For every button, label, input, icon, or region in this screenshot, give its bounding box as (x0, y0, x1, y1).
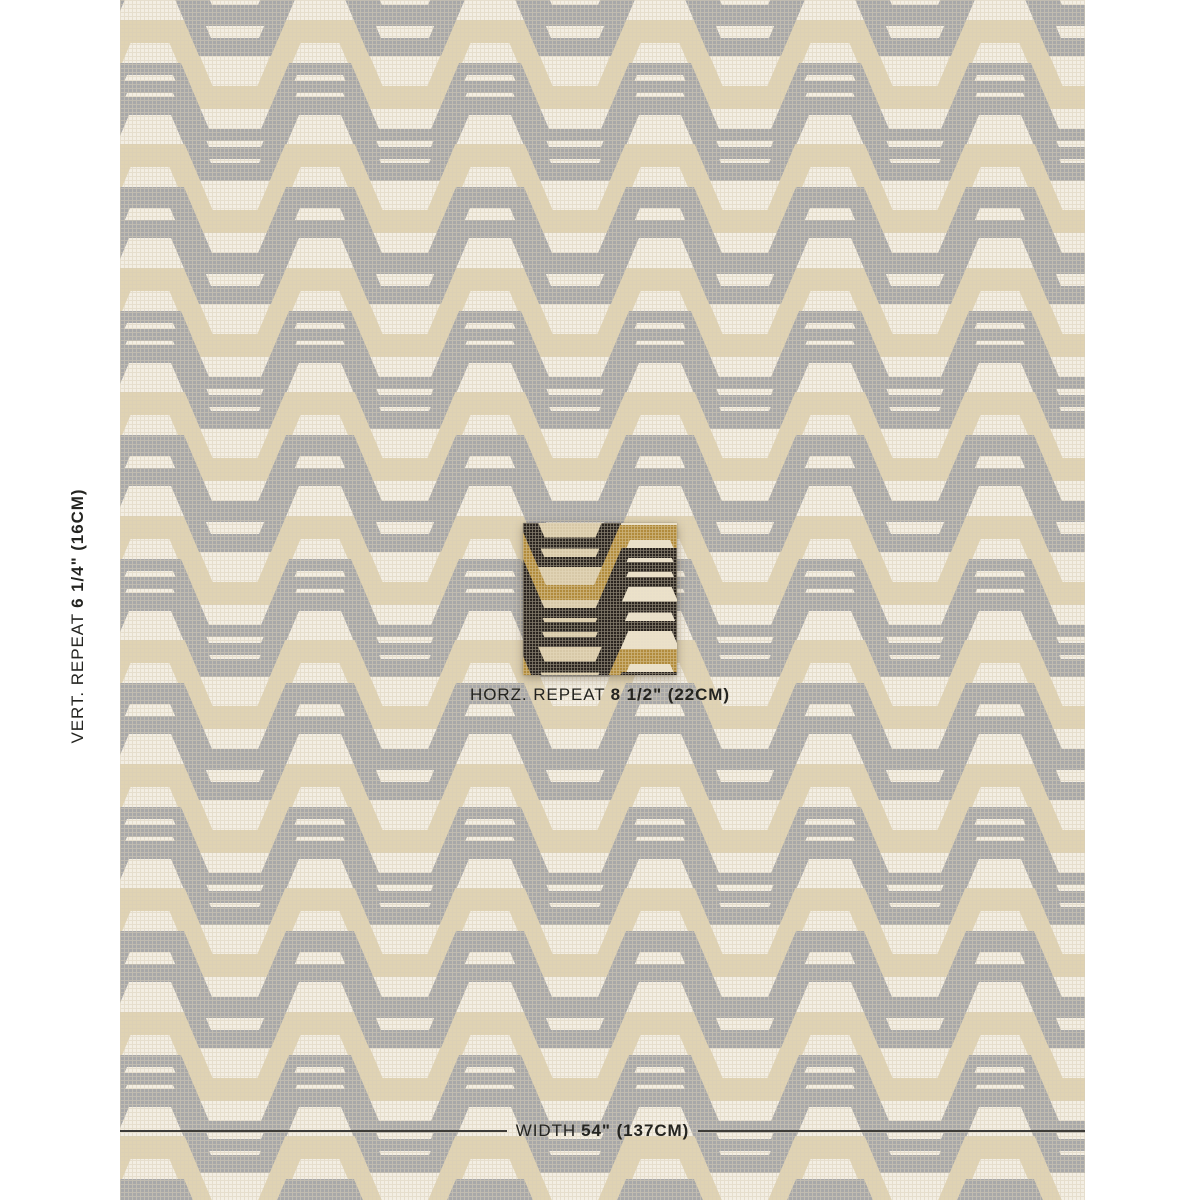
width-text: WIDTH (516, 1121, 576, 1140)
vertical-repeat-text: VERT. REPEAT (68, 613, 87, 744)
fabric-swatch-closeup (523, 523, 677, 675)
width-rule-left (120, 1130, 507, 1132)
width-annotation: WIDTH54" (137CM) (120, 1119, 1085, 1143)
swatch-zigzag-pattern-image (523, 523, 677, 675)
vertical-repeat-value: 6 1/4" (16CM) (68, 489, 87, 608)
horizontal-repeat-value: 8 1/2" (22CM) (611, 685, 730, 704)
horizontal-repeat-text: HORZ. REPEAT (470, 685, 606, 704)
width-label: WIDTH54" (137CM) (516, 1121, 690, 1141)
horizontal-repeat-label: HORZ. REPEAT8 1/2" (22CM) (0, 685, 1200, 705)
width-value: 54" (137CM) (581, 1121, 689, 1140)
fabric-spec-sheet: VERT. REPEAT6 1/4" (16CM) HORZ. REPEAT8 … (0, 0, 1200, 1200)
width-rule-right (698, 1130, 1085, 1132)
vertical-repeat-label: VERT. REPEAT6 1/4" (16CM) (68, 489, 88, 744)
